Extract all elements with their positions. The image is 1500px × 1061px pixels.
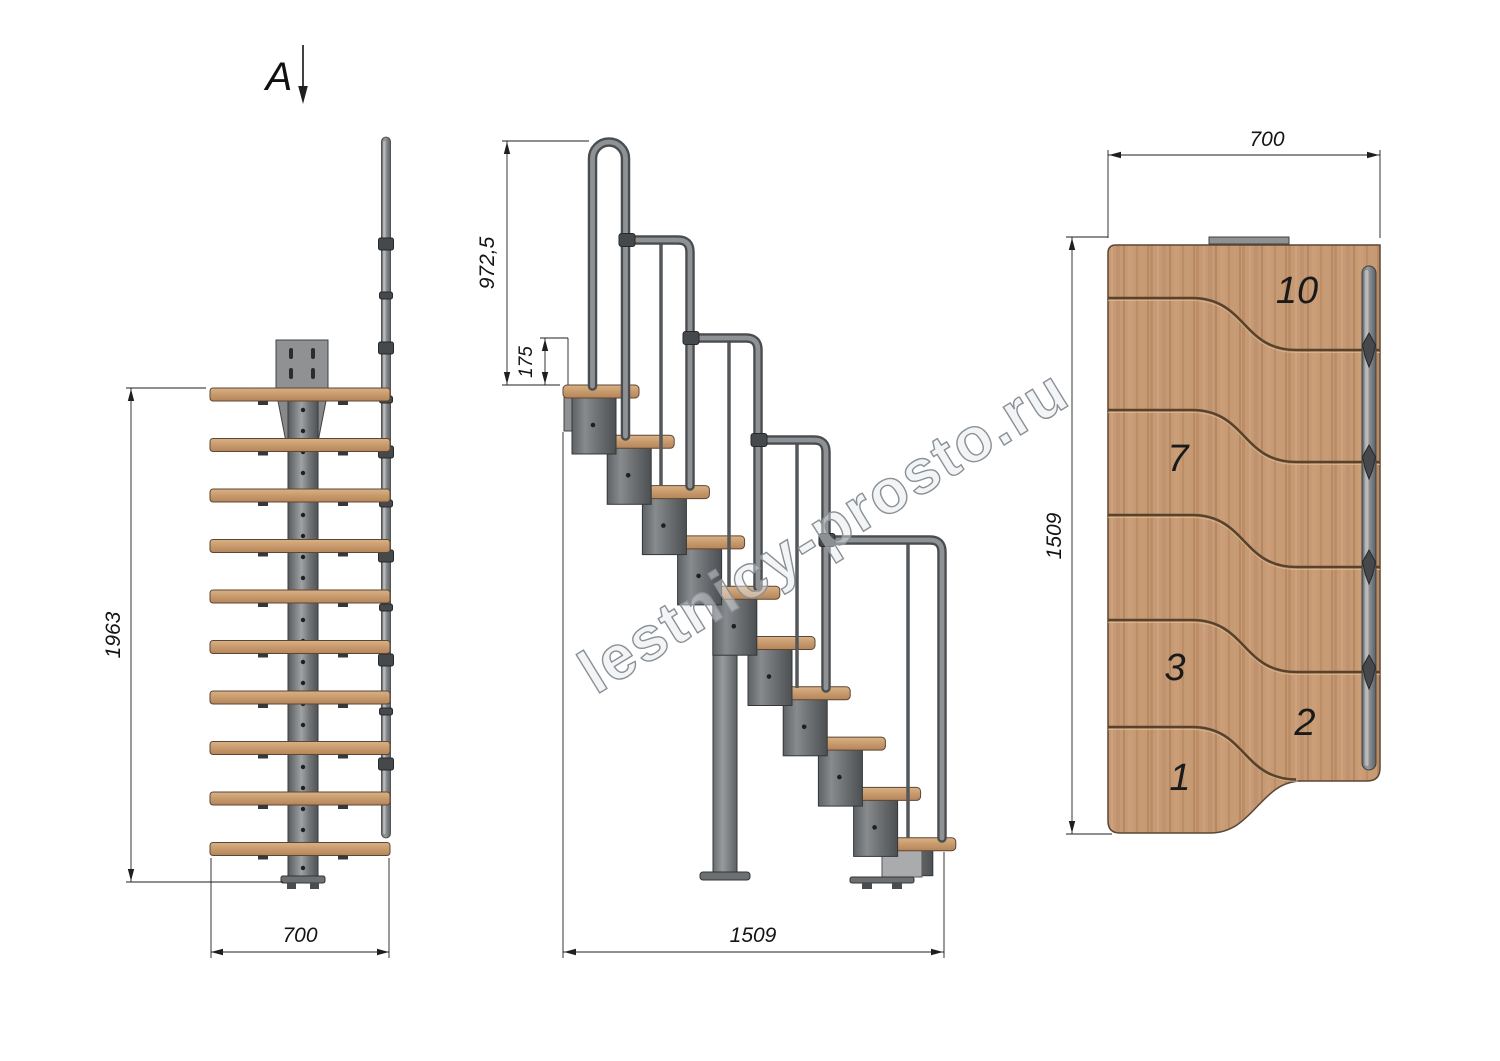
side-rise-value: 175: [516, 346, 537, 378]
step-number-2: 2: [1293, 702, 1315, 744]
side-support-column: [700, 652, 750, 880]
plan-width-value: 700: [1249, 128, 1284, 151]
section-marker: A: [264, 45, 308, 104]
plan-length-dimension: 1509: [1043, 237, 1112, 834]
step-number-1: 1: [1169, 757, 1190, 799]
plan-steps-board: [1108, 245, 1380, 833]
front-width-value: 700: [282, 924, 317, 947]
plan-view: 10 7 3 2 1 700: [1043, 128, 1380, 834]
front-central-column: [288, 388, 318, 880]
step-number-10: 10: [1276, 270, 1318, 312]
front-height-value: 1963: [102, 611, 125, 658]
side-rise-dimension: 175: [516, 338, 548, 385]
technical-drawing-page: A: [0, 0, 1500, 1061]
plan-handrail: [1362, 266, 1376, 770]
front-view: 1963 700: [102, 137, 394, 958]
plan-width-dimension: 700: [1108, 128, 1380, 238]
section-label: A: [264, 55, 293, 99]
side-view: 972,5 175 1509: [476, 141, 956, 958]
section-arrow-icon: [298, 86, 308, 104]
front-height-dimension: 1963: [102, 388, 283, 882]
side-rail-height-value: 972,5: [476, 236, 499, 289]
front-handrail-post: [379, 137, 394, 838]
side-length-value: 1509: [730, 924, 777, 947]
front-base: [281, 876, 325, 889]
step-number-7: 7: [1167, 438, 1190, 480]
staircase-drawing: A: [0, 0, 1500, 1061]
plan-length-value: 1509: [1043, 512, 1066, 559]
step-number-3: 3: [1164, 647, 1185, 689]
